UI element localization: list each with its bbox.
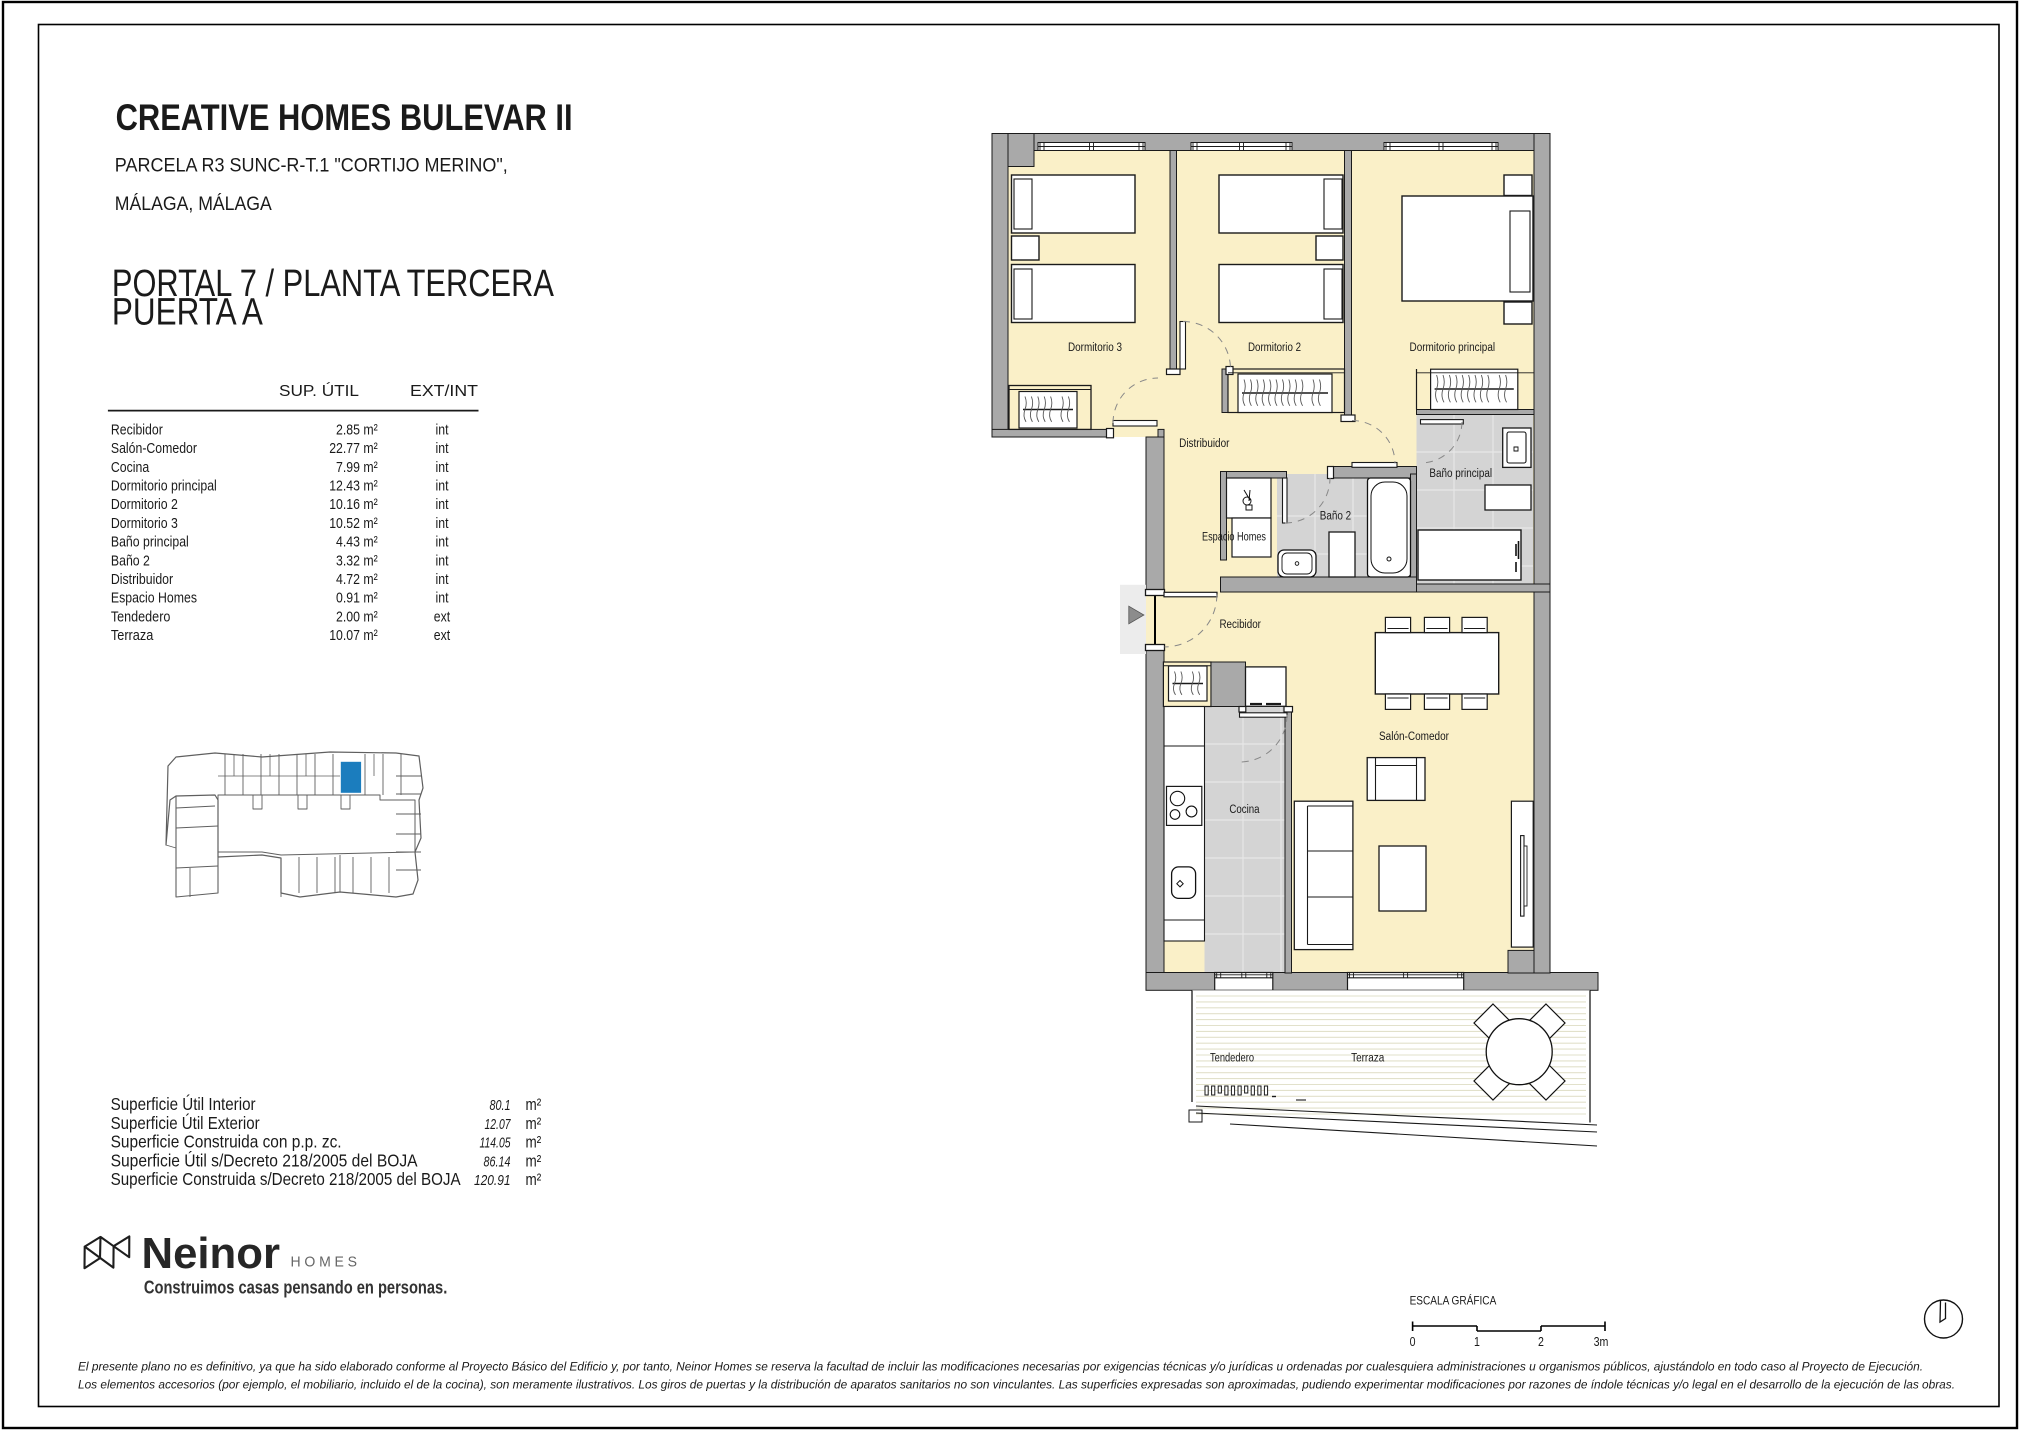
svg-text:int: int bbox=[436, 552, 450, 569]
svg-text:120.91: 120.91 bbox=[474, 1173, 511, 1189]
svg-text:PUERTA A: PUERTA A bbox=[112, 292, 264, 334]
svg-text:2.00 m²: 2.00 m² bbox=[336, 608, 378, 625]
svg-text:Baño 2: Baño 2 bbox=[1320, 511, 1351, 523]
svg-text:Distribuidor: Distribuidor bbox=[1179, 438, 1229, 450]
svg-text:Tendedero: Tendedero bbox=[111, 608, 170, 625]
svg-text:Dormitorio principal: Dormitorio principal bbox=[1410, 342, 1496, 354]
svg-text:0: 0 bbox=[1410, 1334, 1416, 1349]
svg-text:Cocina: Cocina bbox=[1229, 804, 1260, 816]
svg-text:Dormitorio 3: Dormitorio 3 bbox=[111, 515, 178, 532]
svg-text:HOMES: HOMES bbox=[291, 1254, 361, 1271]
svg-text:Baño principal: Baño principal bbox=[111, 534, 189, 551]
svg-text:ext: ext bbox=[434, 627, 451, 644]
svg-text:MÁLAGA, MÁLAGA: MÁLAGA, MÁLAGA bbox=[115, 192, 272, 215]
svg-text:Salón-Comedor: Salón-Comedor bbox=[1379, 731, 1449, 743]
svg-text:Espacio Homes: Espacio Homes bbox=[1202, 532, 1266, 544]
svg-text:m²: m² bbox=[526, 1152, 542, 1170]
svg-text:ESCALA GRÁFICA: ESCALA GRÁFICA bbox=[1410, 1292, 1497, 1307]
svg-text:4.43 m²: 4.43 m² bbox=[336, 534, 378, 551]
svg-text:EXT/INT: EXT/INT bbox=[410, 383, 478, 400]
svg-text:Dormitorio 2: Dormitorio 2 bbox=[1248, 342, 1301, 354]
svg-text:SUP. ÚTIL: SUP. ÚTIL bbox=[279, 381, 359, 400]
svg-text:int: int bbox=[436, 515, 450, 532]
svg-text:12.43 m²: 12.43 m² bbox=[329, 478, 378, 495]
svg-text:2: 2 bbox=[1538, 1334, 1544, 1349]
svg-text:Baño principal: Baño principal bbox=[1429, 468, 1492, 480]
svg-text:3m: 3m bbox=[1594, 1334, 1609, 1349]
svg-text:Superficie Construida s/Decret: Superficie Construida s/Decreto 218/2005… bbox=[111, 1169, 461, 1189]
svg-text:Superficie Construida con p.p.: Superficie Construida con p.p. zc. bbox=[111, 1132, 342, 1152]
svg-text:Dormitorio 3: Dormitorio 3 bbox=[1068, 342, 1122, 354]
svg-text:int: int bbox=[436, 496, 450, 513]
svg-text:114.05: 114.05 bbox=[480, 1136, 512, 1152]
svg-text:m²: m² bbox=[526, 1171, 542, 1189]
svg-text:3.32 m²: 3.32 m² bbox=[336, 552, 378, 569]
svg-text:Tendedero: Tendedero bbox=[1210, 1053, 1254, 1065]
svg-text:12.07: 12.07 bbox=[485, 1117, 512, 1133]
svg-text:Cocina: Cocina bbox=[111, 459, 150, 476]
svg-text:int: int bbox=[436, 421, 450, 438]
svg-text:int: int bbox=[436, 459, 450, 476]
svg-text:10.16 m²: 10.16 m² bbox=[329, 496, 378, 513]
svg-text:int: int bbox=[436, 534, 450, 551]
svg-text:Construimos casas pensando en: Construimos casas pensando en personas. bbox=[144, 1277, 447, 1297]
svg-text:2.85 m²: 2.85 m² bbox=[336, 421, 378, 438]
svg-text:Superficie Útil Interior: Superficie Útil Interior bbox=[111, 1093, 256, 1114]
svg-text:Neinor: Neinor bbox=[142, 1229, 281, 1278]
svg-text:1: 1 bbox=[1474, 1334, 1480, 1349]
svg-text:Distribuidor: Distribuidor bbox=[111, 571, 173, 588]
svg-text:Baño 2: Baño 2 bbox=[111, 552, 150, 569]
svg-text:10.07 m²: 10.07 m² bbox=[329, 627, 378, 644]
svg-text:Superficie Útil Exterior: Superficie Útil Exterior bbox=[111, 1112, 260, 1133]
svg-text:Dormitorio principal: Dormitorio principal bbox=[111, 478, 217, 495]
svg-text:80.1: 80.1 bbox=[490, 1098, 511, 1114]
svg-text:int: int bbox=[436, 478, 450, 495]
svg-text:int: int bbox=[436, 590, 450, 607]
svg-text:22.77 m²: 22.77 m² bbox=[329, 440, 378, 457]
svg-text:CREATIVE HOMES BULEVAR II: CREATIVE HOMES BULEVAR II bbox=[116, 96, 573, 138]
svg-text:0.91 m²: 0.91 m² bbox=[336, 590, 378, 607]
svg-text:m²: m² bbox=[526, 1115, 542, 1133]
svg-text:int: int bbox=[436, 440, 450, 457]
svg-text:Superficie Útil s/Decreto 218/: Superficie Útil s/Decreto 218/2005 del B… bbox=[111, 1149, 418, 1170]
svg-text:Recibidor: Recibidor bbox=[1219, 619, 1261, 631]
svg-text:m²: m² bbox=[526, 1096, 542, 1114]
svg-text:Los elementos accesorios (por: Los elementos accesorios (por ejemplo, e… bbox=[78, 1378, 1955, 1392]
svg-text:Terraza: Terraza bbox=[1351, 1053, 1385, 1065]
svg-text:Salón-Comedor: Salón-Comedor bbox=[111, 440, 197, 457]
svg-text:Espacio Homes: Espacio Homes bbox=[111, 590, 197, 607]
svg-text:7.99 m²: 7.99 m² bbox=[336, 459, 378, 476]
svg-text:Terraza: Terraza bbox=[111, 627, 154, 644]
svg-text:ext: ext bbox=[434, 608, 451, 625]
svg-text:PARCELA R3 SUNC-R-T.1 "CORTIJO: PARCELA R3 SUNC-R-T.1 "CORTIJO MERINO", bbox=[115, 155, 508, 177]
svg-text:Recibidor: Recibidor bbox=[111, 421, 163, 438]
svg-text:4.72 m²: 4.72 m² bbox=[336, 571, 378, 588]
svg-text:m²: m² bbox=[526, 1134, 542, 1152]
svg-text:10.52 m²: 10.52 m² bbox=[329, 515, 378, 532]
svg-text:86.14: 86.14 bbox=[484, 1154, 511, 1170]
svg-text:El presente plano no es defini: El presente plano no es definitivo, ya q… bbox=[78, 1360, 1923, 1374]
svg-text:Dormitorio 2: Dormitorio 2 bbox=[111, 496, 178, 513]
svg-text:int: int bbox=[436, 571, 450, 588]
